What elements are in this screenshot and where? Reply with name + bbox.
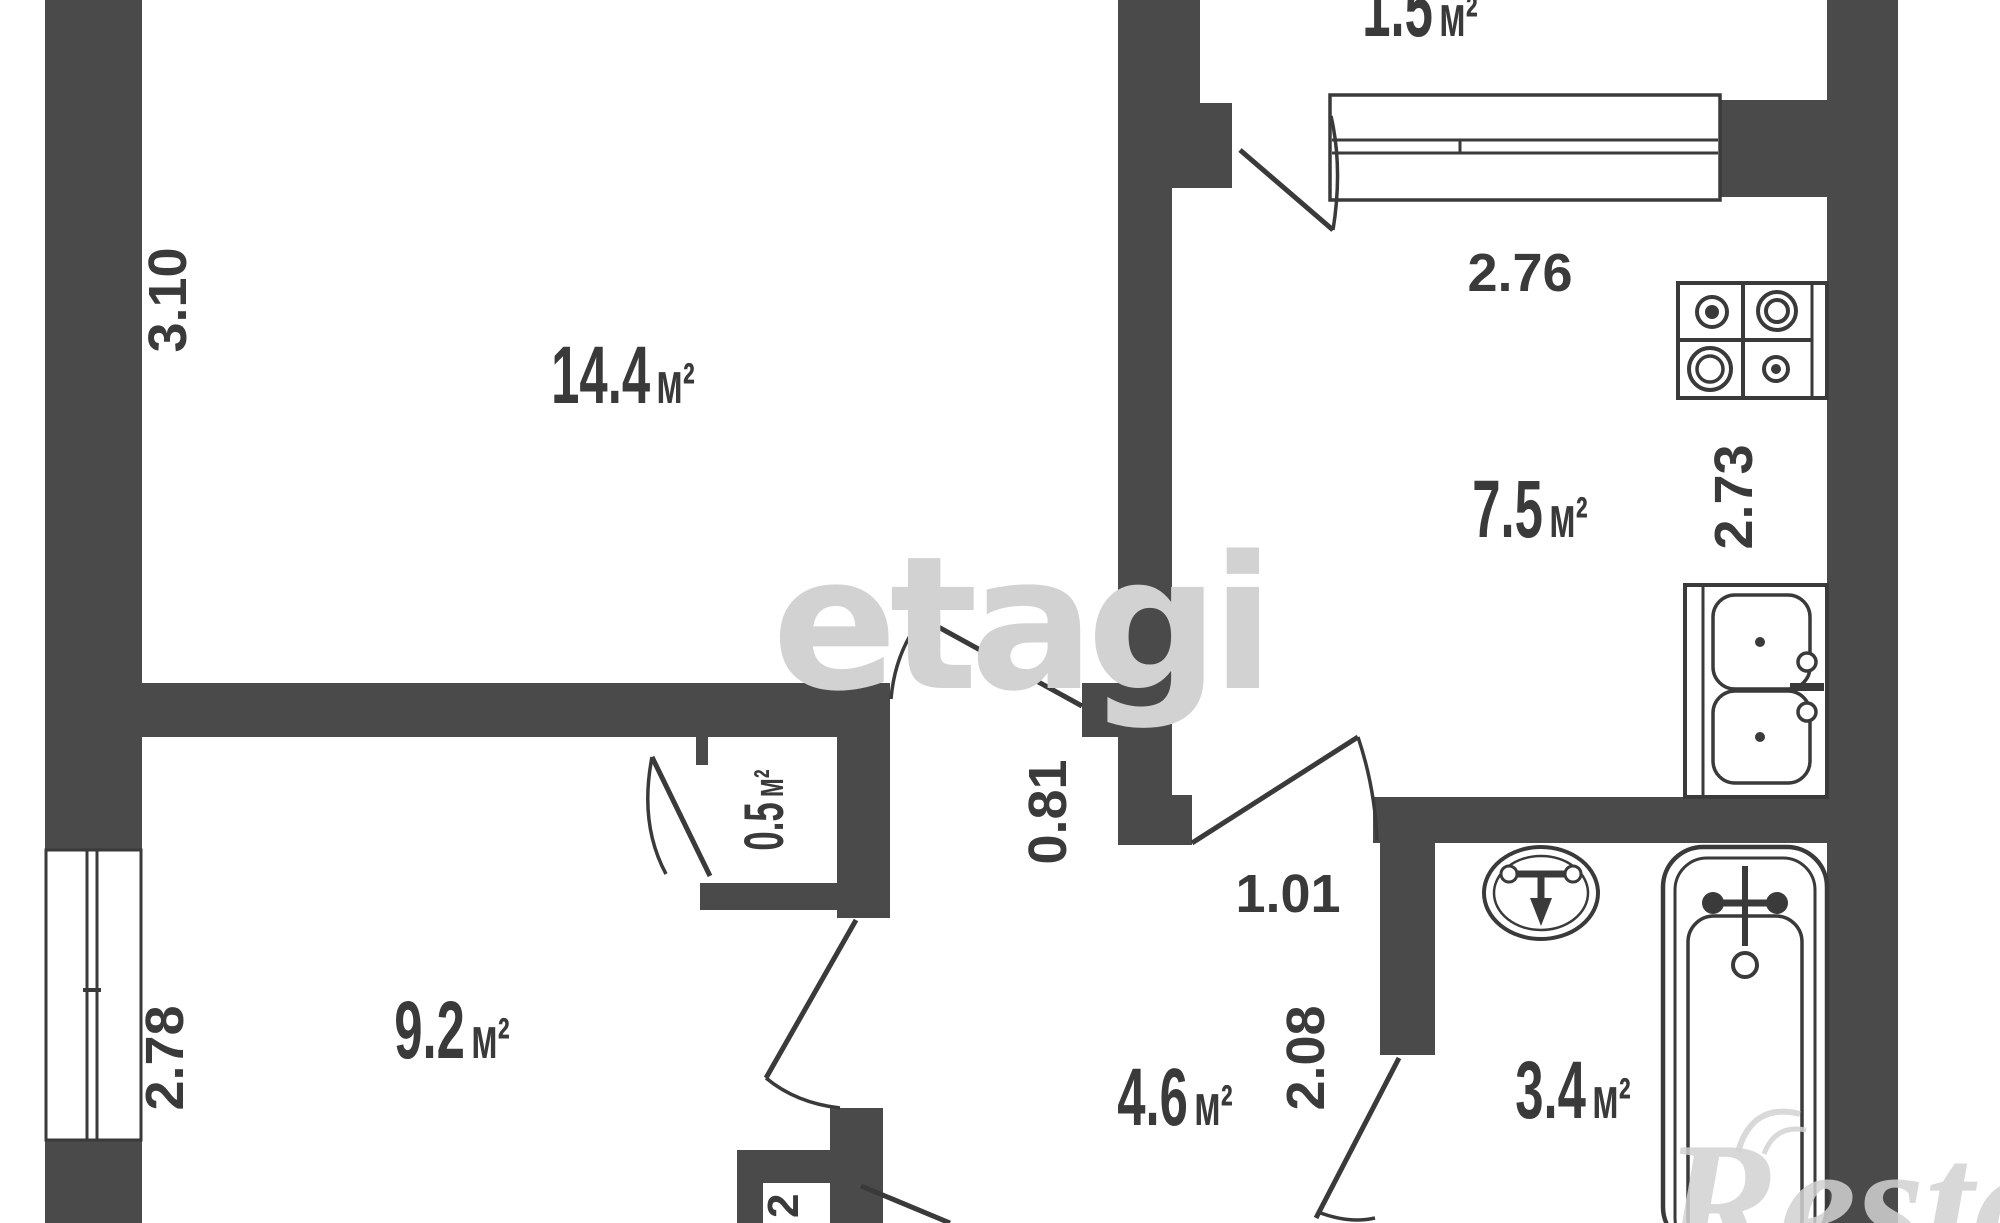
dim-2-76: 2.76 [1467,243,1572,303]
floor-plan-drawing: 14.4м² 1.5м² 7.5м² 0.5м² 9.2м² 4.6м² 3.4… [0,0,2000,1223]
wall-kitchen-top-right [1720,100,1827,197]
partial-label-bottom: 2 [759,1194,808,1218]
dim-2-08: 2.08 [1276,1005,1336,1110]
bathtub-faucet-knob-r [1766,892,1788,914]
stove-icon [1678,283,1827,398]
wall-left-outer-bottom [45,1138,142,1223]
wall-bathroom-top [1373,797,1827,843]
dim-2-73: 2.73 [1704,444,1764,549]
wall-right-outer [1827,0,1898,1223]
wall-bathroom-left [1380,843,1435,1055]
watermark-etagi: etagi [772,516,1267,732]
watermark-restate-text: Restate [1661,1106,2000,1223]
kitchen-sink-drain-bottom [1755,732,1765,742]
wall-closet-right [837,737,890,918]
wall-closet-left-stub [696,737,708,765]
wardrobe-outline [1330,95,1720,200]
watermark-restate: Restate [1661,1106,2000,1223]
kitchen-sink-faucet-knob-2 [1798,703,1816,721]
floor-plan-page: 14.4м² 1.5м² 7.5м² 0.5м² 9.2м² 4.6м² 3.4… [0,0,2000,1223]
label-room-1-5: 1.5м² [1362,0,1477,54]
kitchen-sink-drain-top [1755,637,1765,647]
stove-burner-tl-center [1705,305,1719,319]
wall-left-outer-top [45,0,142,852]
dim-0-81: 0.81 [1018,759,1078,864]
wall-jamb-room1-5-door [1200,103,1232,188]
wall-hall-stub-vertical [830,1108,883,1223]
wall-room1-5-left [1172,0,1200,188]
bathtub-drain [1733,953,1757,977]
bathtub-faucet-knob-l [1702,892,1724,914]
wardrobe [1330,95,1720,200]
bathroom-sink-faucet-knob-l [1501,866,1517,882]
wall-closet-bottom [700,883,837,910]
stove-burner-br-center [1771,364,1781,374]
dim-1-01: 1.01 [1235,864,1340,924]
dim-2-78: 2.78 [135,1005,195,1110]
wall-center-foot [1118,795,1192,845]
window-frame [46,850,141,1140]
kitchen-sink-icon [1685,585,1827,797]
kitchen-sink-faucet-knob-1 [1798,653,1816,671]
bathroom-sink-icon [1484,847,1598,939]
dim-3-10: 3.10 [138,247,198,352]
window [46,850,141,1140]
wall-hall-stub-horizontal [737,1150,830,1183]
bathroom-sink-faucet-knob-r [1565,866,1581,882]
